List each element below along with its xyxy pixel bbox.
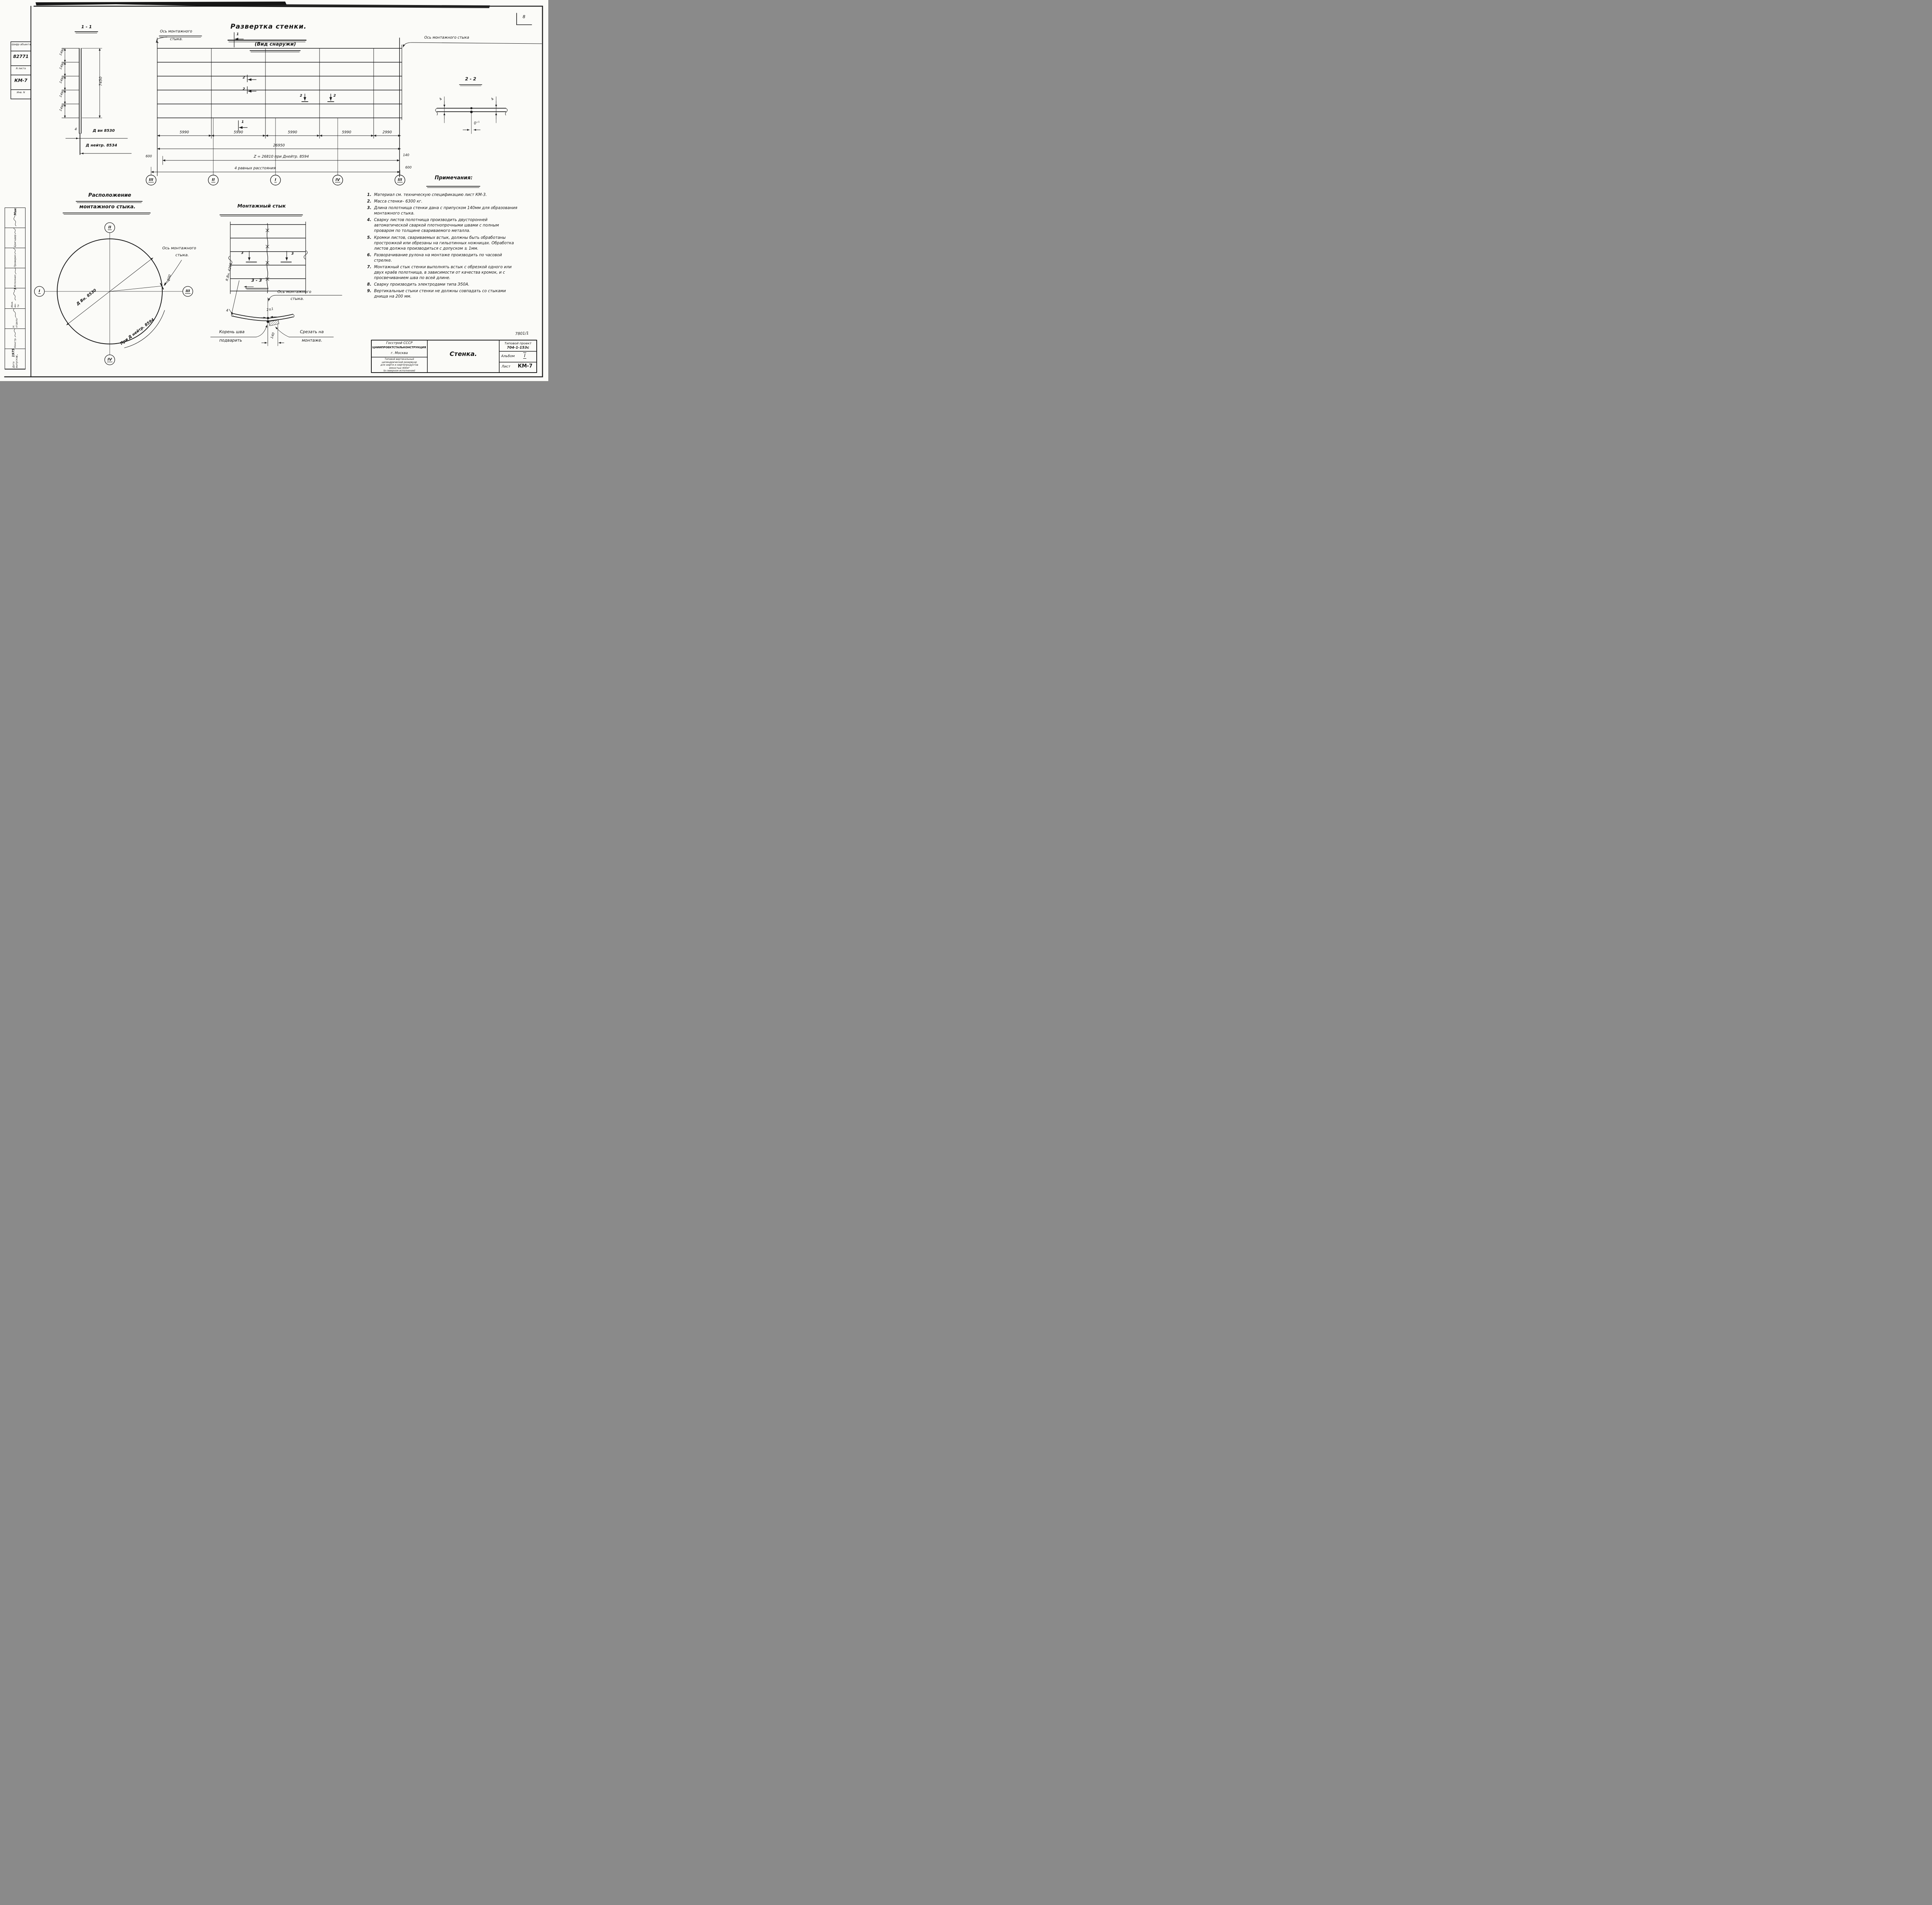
panel-dim-4: 5990 (339, 131, 354, 135)
total-dim: 26950 (270, 144, 288, 148)
signature-squiggle (13, 309, 17, 318)
org-name-line2: ЦНИИПРОЕКТСТАЛЬКОНСТРУКЦИЯ (371, 346, 427, 349)
dia-neutral-label: Д нейтр. 8534 (86, 143, 130, 148)
sheet-corner-number: 8 (519, 15, 529, 19)
project-desc-line3: для нефти и нефтепродуктов (372, 364, 427, 366)
sheet-value: КМ-7 (515, 363, 536, 369)
section-mark-3-right: 3 (290, 252, 295, 256)
signature-row: Н. отдела Томпина (5, 309, 25, 329)
axis-bubble-III-left: III (146, 175, 156, 185)
seam-axis-3-3-line1: Ось монтажного (277, 290, 332, 294)
signature-squiggle (13, 268, 17, 274)
section-mark-1-bottom: 1 (240, 120, 245, 124)
offset-right-600: 600 (403, 166, 413, 170)
layout-seam-line2: стыка. (175, 253, 199, 257)
axis-bubble-I: I (270, 175, 281, 185)
stamp-label-object-code: Шифр объекта (12, 43, 30, 46)
axis-bubble-III-right: III (395, 175, 405, 185)
signature-row: Максимец (5, 208, 25, 228)
signature-squiggle (13, 329, 17, 338)
z-dim: Z = 26810 при Днейтр. 8594 (239, 155, 324, 159)
signature-squiggle (13, 228, 17, 235)
cut-note-line1: Срезать на (291, 330, 333, 335)
notes-list: 1.Материал см. техническую спецификацию … (367, 192, 519, 301)
seam-axis-label-right: Ось монтажного стыка (424, 36, 502, 40)
type-project-label: Типовой проект (500, 341, 536, 345)
panel-dim-3: 5990 (285, 131, 300, 135)
root-note-line1: Корень шва (210, 330, 253, 335)
wall-thickness-4: 4 (73, 128, 78, 131)
note-item: 7.Монтажный стык стенки выполнять встык … (367, 265, 519, 281)
note-item: 9.Вертикальные стыки стенки не должны со… (367, 289, 519, 300)
section-mark-2-b: 2 (241, 87, 247, 91)
project-desc-line1: Типовой вертикальный (372, 358, 427, 361)
album-value: I (521, 353, 529, 358)
section-mark-3-left: 3 (240, 251, 245, 255)
type-project-value: 704-1-153с (500, 346, 536, 350)
panel-dim-5: 2990 (379, 131, 395, 135)
root-note-line2: подварить (211, 339, 250, 343)
signature-row: Дата выпуска 1975 г. (5, 349, 25, 369)
signature-squiggle (13, 248, 17, 254)
note-item: 5.Кромки листов, свариваемых встык, долж… (367, 235, 519, 252)
offset-left-600: 600 (144, 155, 154, 159)
drawing-linework (0, 0, 548, 381)
signature-row: Проверил Иншаков (5, 248, 25, 268)
note-item: 2.Масса стенки– 6300 кг. (367, 199, 519, 204)
stamp-label-sheet-no: N листа (12, 67, 30, 70)
project-desc-line4: емкостью 400м³ (372, 367, 427, 369)
layout-bubble-I: I (34, 286, 44, 296)
panel-dim-1: 5990 (177, 131, 192, 135)
layout-bubble-IV: IV (105, 355, 115, 365)
org-name-line3: г. Москва (372, 351, 427, 355)
section-2-2-title: 2 - 2 (459, 77, 482, 82)
signature-row: Констр. Максимец (5, 329, 25, 349)
dia-inner-label: Д вн 8530 (93, 129, 129, 133)
layout-title-line1: Расположение (77, 193, 143, 199)
plate-thickness-3-3: 4 (224, 309, 230, 313)
stamp-label-inv-no: Инв. N (12, 91, 30, 94)
cut-note-line2: монтаже. (294, 339, 330, 343)
section-1-1-title: 1 - 1 (76, 25, 97, 29)
layout-seam-line1: Ось монтажного (162, 246, 209, 250)
development-subtitle: (Вид снаружи) (243, 41, 307, 47)
project-desc-line2: цилиндрический резервуар (372, 361, 427, 364)
notes-title: Примечания: (428, 175, 479, 181)
stamp-value-object-code: 82771 (12, 54, 30, 59)
development-title: Развертка стенки. (230, 23, 307, 31)
signature-squiggle (13, 289, 17, 301)
signature-row: Исполнил Федорова (5, 268, 25, 288)
seam-axis-label-left-line1: Ось монтажного (160, 30, 202, 34)
axis-bubble-IV: IV (333, 175, 343, 185)
section-mark-2-d: 2 (332, 94, 337, 98)
project-desc-line5: (в северном исполнении) (372, 369, 427, 372)
note-item: 4.Сварку листов полотнища производить дв… (367, 218, 519, 234)
panel-dim-2: 5990 (231, 131, 246, 135)
layout-bubble-III: III (183, 286, 193, 296)
section-mark-1-top: 1 (235, 32, 240, 36)
section-mark-2-c: 2 (298, 94, 304, 98)
signature-row: Инж. ин-та Кузнецов (5, 289, 25, 309)
note-item: 8.Сварку производить электродами типа Э5… (367, 282, 519, 288)
drawing-sheet: 8 Шифр объекта 82771 N листа КМ-7 Инв. N… (0, 0, 548, 381)
equal-spacing-note: 4 равных расстояния (216, 167, 294, 171)
section-3-3-title: 3 - 3 (246, 278, 267, 283)
section-mark-2-a: 2 (241, 76, 247, 80)
layout-title-line2: монтажного стыка. (64, 204, 151, 210)
seam-axis-3-3-line2: стыка. (291, 297, 318, 301)
note-item: 6.Разворачивание рулона на монтаже произ… (367, 253, 519, 264)
signature-strip: Максимец Бригадир Иншаков Проверил Иншак… (5, 208, 26, 369)
note-item: 3.Длина полотнища стенки дана с припуско… (367, 206, 519, 216)
signature-row: Бригадир Иншаков (5, 228, 25, 248)
sheet-title: Стенка. (427, 350, 499, 358)
org-name-line1: Госстрой СССР (372, 341, 427, 345)
seam-axis-label-left-line2: стыка. (170, 37, 193, 42)
height-dim-7450: 7450 (99, 73, 104, 89)
signature-squiggle (13, 215, 17, 227)
note-item: 1.Материал см. техническую спецификацию … (367, 192, 519, 198)
album-label: Альбом (501, 354, 519, 358)
allowance-140: 140 (401, 154, 411, 158)
stamp-value-sheet-no: КМ-7 (12, 78, 30, 83)
axis-bubble-II: II (208, 175, 218, 185)
layout-bubble-II: II (105, 223, 115, 233)
stik-view-title: Монтажный стык (221, 203, 302, 209)
